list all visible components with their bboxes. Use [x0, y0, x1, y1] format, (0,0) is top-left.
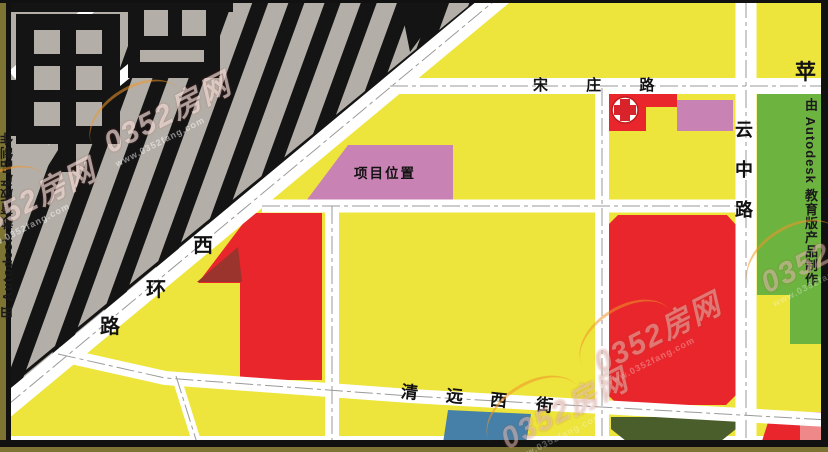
courtyard: [144, 10, 168, 36]
frame-bottom-border: [0, 440, 828, 447]
courtyard: [34, 102, 60, 126]
road-label-xihuan-char1: 西: [193, 236, 213, 256]
road-label-xihuan-char3: 路: [100, 317, 120, 337]
courtyard: [34, 66, 60, 90]
road-label-qingyuan-char1: 清: [400, 383, 419, 402]
zoning-map: 宋 庄 路 云中路 西 环 路 清 远 西 街 项目位置 苹 由 Autodes…: [0, 0, 828, 452]
building-stem: [58, 144, 76, 172]
courtyard: [34, 30, 60, 54]
courtyard: [76, 102, 102, 126]
autodesk-stamp-left: 由 Autodesk 教育版产品制作: [0, 80, 17, 320]
parcel-red-east: [607, 215, 737, 405]
building-mass-1: [16, 14, 120, 144]
project-site-label: 项目位置: [354, 167, 416, 181]
parcel-pink-small: [677, 100, 733, 131]
frame-bottom-outer: [0, 447, 828, 452]
courtyard: [76, 30, 102, 54]
courtyard: [140, 50, 204, 62]
road-label-songzhuang: 宋 庄 路: [533, 78, 671, 93]
frame-top-border: [0, 0, 828, 3]
road-label-pingguoyuan: 苹: [795, 62, 816, 83]
road-label-qingyuan-char2: 远: [445, 387, 464, 406]
road-label-yunzhong: 云中路: [734, 120, 752, 240]
courtyard: [76, 66, 102, 90]
courtyard: [182, 10, 206, 36]
road-label-qingyuan-char4: 街: [535, 396, 554, 415]
building-mass-2: [128, 0, 220, 78]
parcel-blue-south: [443, 410, 531, 443]
road-label-qingyuan-char3: 西: [489, 391, 508, 410]
frame-right-border: [821, 0, 828, 441]
road-label-xihuan-char2: 环: [146, 280, 166, 300]
autodesk-stamp-right: 由 Autodesk 教育版产品制作: [801, 98, 820, 318]
hospital-cross-icon: [612, 97, 638, 123]
